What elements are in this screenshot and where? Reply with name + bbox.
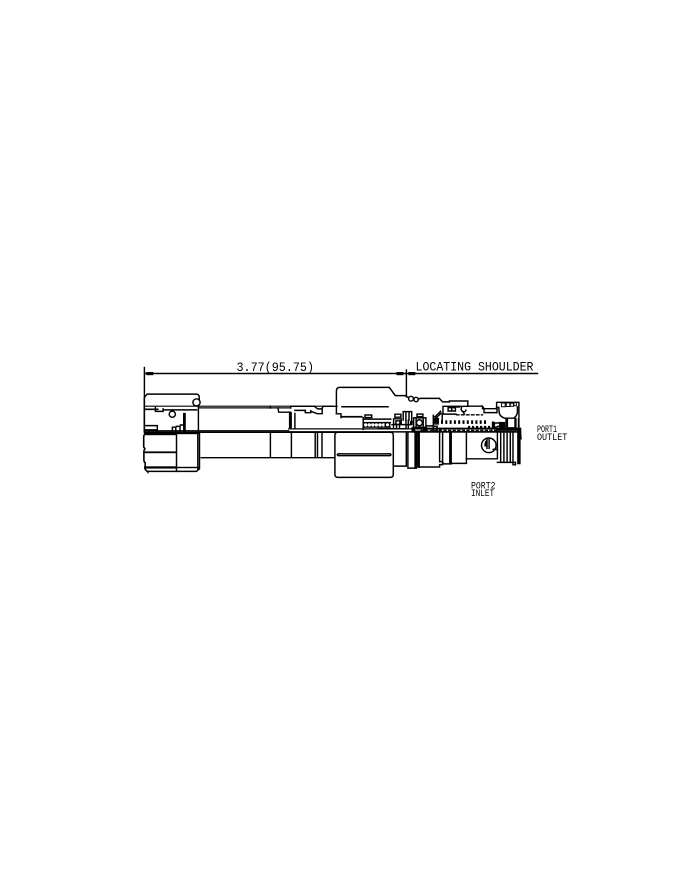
svg-text:OUTLET: OUTLET	[537, 432, 567, 444]
svg-text:LOCATING SHOULDER: LOCATING SHOULDER	[416, 360, 534, 374]
svg-text:INLET: INLET	[471, 488, 494, 500]
svg-text:3.77(95.75): 3.77(95.75)	[237, 361, 315, 375]
